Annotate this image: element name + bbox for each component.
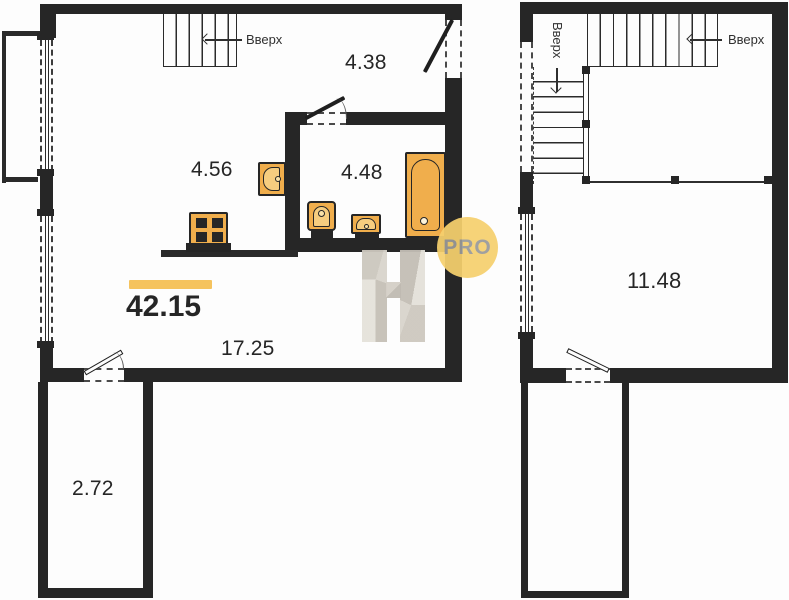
- window-cap: [37, 341, 54, 348]
- stove-base: [186, 243, 231, 252]
- watermark-letter-bar: [362, 250, 387, 342]
- watermark-pro-badge: PRO: [437, 217, 498, 278]
- wall: [285, 112, 300, 252]
- window: [520, 214, 533, 332]
- railing-post: [582, 176, 590, 184]
- window-cap: [518, 207, 535, 214]
- balcony-wall: [38, 382, 48, 598]
- stairs-up-label: Вверх: [246, 32, 282, 47]
- balcony-wall: [521, 383, 528, 598]
- wall: [124, 368, 462, 382]
- wall: [346, 112, 462, 125]
- room-area-label-balcony: 2.72: [72, 477, 114, 501]
- wall: [520, 2, 788, 14]
- watermark-letter-bar: [400, 250, 425, 342]
- outer-loggia-wall: [2, 31, 40, 36]
- room-area-label-hall: 4.38: [345, 51, 387, 75]
- wall: [40, 368, 84, 382]
- window: [40, 40, 53, 171]
- outer-loggia-wall: [2, 31, 6, 183]
- window-cap: [518, 332, 535, 339]
- railing-post: [582, 66, 590, 74]
- window-cap: [37, 209, 54, 216]
- railing-post: [671, 176, 679, 184]
- bathtub-icon: [405, 152, 446, 238]
- railing-post: [582, 120, 590, 128]
- kitchen-sink-icon: [258, 162, 286, 196]
- total-area-underline: [129, 280, 212, 289]
- balcony-wall: [622, 383, 629, 598]
- floor-plan: Вверх 4.38 4.56 4.48 42.15 17.25: [0, 0, 789, 600]
- window-cap: [37, 33, 54, 40]
- room-area-label-living: 17.25: [221, 337, 275, 361]
- room-area-label-upper-room: 11.48: [627, 268, 681, 294]
- kitchen-stove-icon: [189, 212, 228, 245]
- watermark-letter-crossbar: [386, 282, 401, 298]
- wall: [445, 4, 462, 20]
- balcony-wall: [143, 382, 153, 598]
- room-area-label-kitchen: 4.56: [191, 158, 233, 182]
- wall: [610, 368, 788, 383]
- toilet-icon: [307, 201, 336, 231]
- railing-post: [764, 176, 772, 184]
- watermark-pro-text: PRO: [443, 236, 492, 260]
- total-area-label: 42.15: [126, 290, 201, 324]
- window-cap: [37, 169, 54, 176]
- railing: [588, 181, 772, 183]
- room-area-label-bathroom: 4.48: [341, 161, 383, 185]
- stairs-up-label: Вверх: [728, 32, 764, 47]
- stairs-up-label: Вверх: [550, 22, 565, 58]
- balcony-wall: [521, 591, 629, 598]
- window: [40, 216, 53, 343]
- wall: [520, 2, 533, 42]
- outer-loggia-wall: [2, 177, 38, 182]
- door-swing-arc: [336, 98, 347, 119]
- bathroom-sink-icon: [351, 214, 381, 234]
- stair-void-opening: [520, 42, 533, 172]
- wall: [772, 2, 788, 383]
- wall: [520, 368, 566, 383]
- door-swing-arc: [113, 352, 124, 369]
- balcony-wall: [38, 588, 153, 598]
- wall: [40, 4, 462, 14]
- stairs-upper-vertical: [533, 67, 588, 184]
- wall: [40, 171, 53, 214]
